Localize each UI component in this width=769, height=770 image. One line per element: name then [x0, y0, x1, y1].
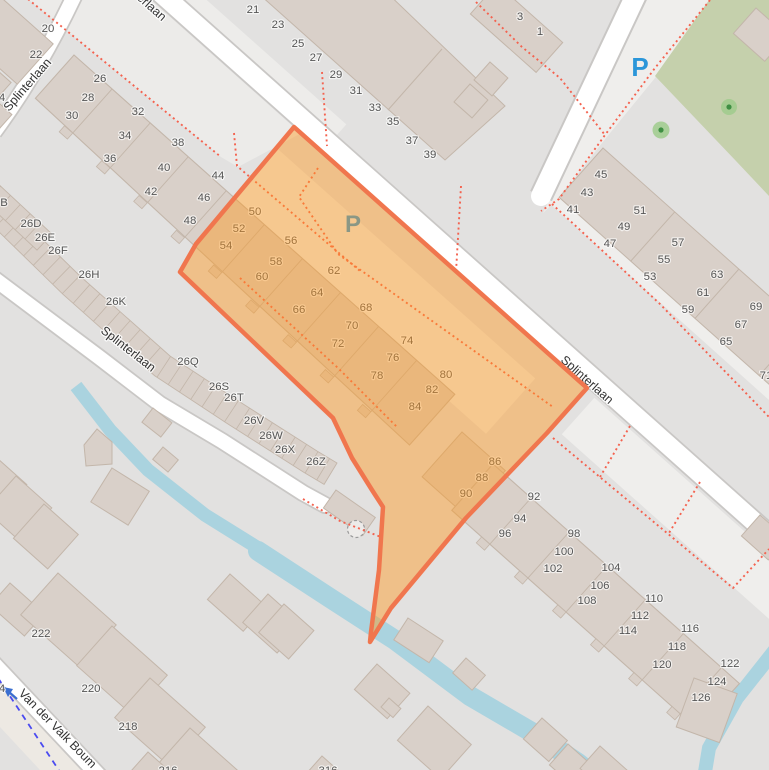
svg-text:20: 20	[42, 23, 55, 35]
svg-text:26T: 26T	[224, 392, 244, 404]
svg-text:112: 112	[631, 610, 649, 622]
svg-text:26Q: 26Q	[177, 356, 199, 368]
svg-text:216: 216	[158, 765, 177, 770]
svg-text:27: 27	[310, 52, 323, 64]
svg-text:57: 57	[672, 237, 685, 249]
svg-text:53: 53	[644, 271, 657, 283]
svg-text:26E: 26E	[35, 232, 56, 244]
svg-text:124: 124	[707, 676, 726, 688]
svg-text:94: 94	[514, 513, 527, 525]
svg-text:38: 38	[172, 137, 185, 149]
svg-text:114: 114	[619, 625, 637, 637]
svg-text:43: 43	[581, 187, 594, 199]
svg-text:36: 36	[104, 153, 117, 165]
svg-text:122: 122	[720, 658, 739, 670]
svg-text:71: 71	[760, 370, 769, 382]
svg-text:98: 98	[568, 528, 581, 540]
svg-text:33: 33	[369, 102, 382, 114]
svg-text:44: 44	[212, 170, 225, 182]
svg-text:25: 25	[292, 38, 305, 50]
svg-text:218: 218	[118, 721, 137, 733]
svg-text:37: 37	[406, 135, 419, 147]
svg-text:118: 118	[668, 641, 686, 653]
svg-text:63: 63	[711, 269, 724, 281]
svg-text:26F: 26F	[48, 245, 68, 257]
svg-text:3: 3	[517, 11, 523, 23]
svg-text:41: 41	[567, 204, 580, 216]
svg-text:30: 30	[66, 110, 79, 122]
svg-text:104: 104	[601, 562, 620, 574]
svg-text:120: 120	[652, 659, 671, 671]
svg-text:59: 59	[682, 304, 695, 316]
svg-text:26K: 26K	[106, 296, 127, 308]
svg-text:45: 45	[595, 169, 608, 181]
svg-text:26W: 26W	[259, 430, 283, 442]
svg-text:48: 48	[184, 215, 197, 227]
svg-text:92: 92	[528, 491, 541, 503]
svg-text:65: 65	[720, 336, 733, 348]
svg-text:26H: 26H	[79, 269, 100, 281]
svg-text:220: 220	[81, 683, 100, 695]
svg-text:4: 4	[0, 683, 5, 695]
svg-text:47: 47	[604, 238, 617, 250]
svg-text:126: 126	[691, 692, 710, 704]
svg-text:110: 110	[645, 593, 663, 605]
svg-text:222: 222	[31, 628, 50, 640]
svg-text:31: 31	[350, 85, 363, 97]
svg-text:69: 69	[750, 301, 763, 313]
svg-text:1: 1	[537, 26, 543, 38]
svg-text:21: 21	[247, 4, 260, 16]
svg-text:40: 40	[158, 162, 171, 174]
svg-text:55: 55	[658, 254, 671, 266]
svg-text:100: 100	[554, 546, 573, 558]
svg-text:29: 29	[330, 69, 343, 81]
svg-text:26D: 26D	[21, 218, 42, 230]
svg-text:42: 42	[145, 186, 158, 198]
svg-text:96: 96	[499, 528, 512, 540]
svg-text:26V: 26V	[244, 415, 265, 427]
svg-text:51: 51	[634, 205, 647, 217]
svg-text:39: 39	[424, 149, 437, 161]
svg-text:106: 106	[590, 580, 609, 592]
svg-text:P: P	[631, 52, 648, 82]
svg-text:28: 28	[82, 92, 95, 104]
svg-text:108: 108	[577, 595, 596, 607]
svg-text:26X: 26X	[275, 444, 296, 456]
svg-text:26Z: 26Z	[306, 456, 326, 468]
svg-text:35: 35	[387, 116, 400, 128]
svg-text:26: 26	[94, 73, 107, 85]
svg-text:61: 61	[697, 287, 710, 299]
svg-text:102: 102	[543, 563, 562, 575]
svg-text:49: 49	[618, 221, 631, 233]
svg-text:34: 34	[119, 130, 132, 142]
svg-text:32: 32	[132, 106, 145, 118]
svg-text:23: 23	[272, 19, 285, 31]
svg-text:B: B	[0, 197, 8, 209]
svg-text:116: 116	[681, 623, 699, 635]
svg-text:67: 67	[735, 319, 748, 331]
svg-text:316: 316	[318, 765, 337, 770]
svg-text:46: 46	[198, 192, 211, 204]
